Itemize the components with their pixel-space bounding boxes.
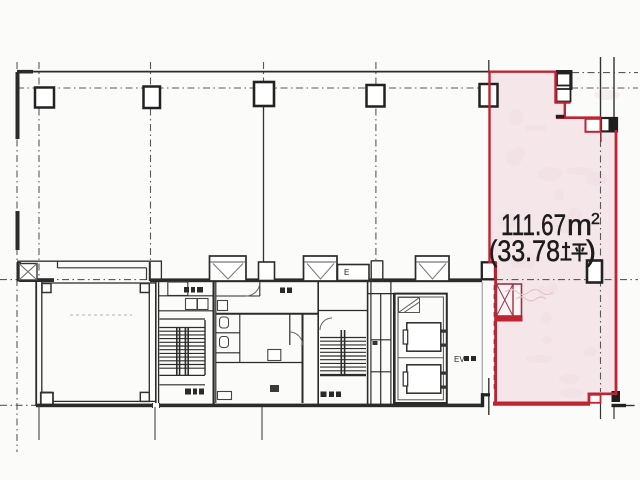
svg-text:): ) [586,235,596,268]
svg-text:E: E [344,268,349,277]
svg-text:EV: EV [454,355,465,364]
svg-text:2: 2 [591,211,600,228]
svg-text:(33.78: (33.78 [489,235,560,268]
